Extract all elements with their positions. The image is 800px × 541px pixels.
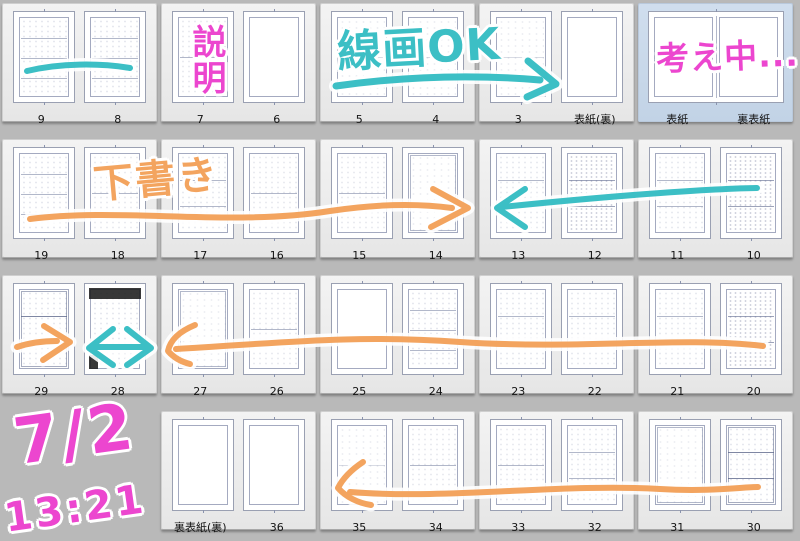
page-spread-unit[interactable]: 54 bbox=[320, 3, 475, 122]
page-number-label: 28 bbox=[80, 385, 157, 399]
page-sketch-content bbox=[180, 427, 226, 503]
page-number-label: 14 bbox=[398, 249, 475, 263]
thumbnail-area bbox=[639, 276, 792, 385]
page-number-labels: 1110 bbox=[639, 249, 792, 263]
page-number-labels: 3332 bbox=[480, 521, 633, 535]
page-thumbnail[interactable] bbox=[331, 419, 393, 511]
page-thumbnail[interactable] bbox=[561, 419, 623, 511]
page-manager-screen: 9876543表紙(裏)表紙裏表紙19181716151413121110292… bbox=[0, 0, 800, 541]
page-sketch-content bbox=[339, 291, 385, 367]
page-thumbnail[interactable] bbox=[720, 283, 782, 375]
page-sketch-content bbox=[498, 19, 544, 95]
page-number-labels: 1918 bbox=[3, 249, 156, 263]
thumbnail-area bbox=[480, 412, 633, 521]
page-spread-unit[interactable]: 2524 bbox=[320, 275, 475, 394]
page-number-label: 10 bbox=[716, 249, 793, 263]
thumbnail-area bbox=[639, 4, 792, 113]
page-spread-unit[interactable]: 3332 bbox=[479, 411, 634, 530]
page-thumbnail[interactable] bbox=[331, 11, 393, 103]
page-number-label: 17 bbox=[162, 249, 239, 263]
page-number-labels: 表紙裏表紙 bbox=[639, 113, 792, 127]
page-thumbnail[interactable] bbox=[402, 419, 464, 511]
page-thumbnail[interactable] bbox=[172, 147, 234, 239]
page-spread-unit[interactable]: 1110 bbox=[638, 139, 793, 258]
page-thumbnail[interactable] bbox=[84, 283, 146, 375]
page-sketch-content bbox=[180, 155, 226, 231]
page-number-label: 22 bbox=[557, 385, 634, 399]
thumbnail-area bbox=[3, 4, 156, 113]
page-sketch-content bbox=[339, 427, 385, 503]
page-row: 19181716151413121110 bbox=[2, 139, 798, 258]
page-row: 29282726252423222120 bbox=[2, 275, 798, 394]
page-number-label: 27 bbox=[162, 385, 239, 399]
page-number-labels: 3130 bbox=[639, 521, 792, 535]
page-sketch-content bbox=[21, 155, 67, 231]
page-spread-unit[interactable]: 2928 bbox=[2, 275, 157, 394]
page-number-label: 30 bbox=[716, 521, 793, 535]
page-sketch-content bbox=[657, 291, 703, 367]
page-number-label: 4 bbox=[398, 113, 475, 127]
page-spread-unit[interactable]: 1918 bbox=[2, 139, 157, 258]
page-thumbnail[interactable] bbox=[172, 283, 234, 375]
page-sketch-content bbox=[569, 427, 615, 503]
page-thumbnail[interactable] bbox=[720, 419, 782, 511]
page-number-label: 6 bbox=[239, 113, 316, 127]
page-sketch-content bbox=[569, 155, 615, 231]
page-sketch-content bbox=[251, 19, 297, 95]
page-number-label: 7 bbox=[162, 113, 239, 127]
page-number-label: 19 bbox=[3, 249, 80, 263]
page-sketch-content bbox=[180, 19, 226, 95]
page-row: 裏表紙(裏)36353433323130 bbox=[2, 411, 798, 530]
page-spread-unit[interactable]: 3表紙(裏) bbox=[479, 3, 634, 122]
page-thumbnail[interactable] bbox=[649, 283, 711, 375]
page-number-label: 11 bbox=[639, 249, 716, 263]
page-number-label: 5 bbox=[321, 113, 398, 127]
page-thumbnail[interactable] bbox=[402, 11, 464, 103]
page-thumbnail[interactable] bbox=[84, 147, 146, 239]
page-number-labels: 2322 bbox=[480, 385, 633, 399]
page-sketch-content bbox=[339, 155, 385, 231]
page-number-labels: 1514 bbox=[321, 249, 474, 263]
page-thumbnail[interactable] bbox=[490, 147, 552, 239]
page-number-label: 34 bbox=[398, 521, 475, 535]
page-number-label: 8 bbox=[80, 113, 157, 127]
page-number-labels: 3表紙(裏) bbox=[480, 113, 633, 127]
thumbnail-area bbox=[321, 412, 474, 521]
page-thumbnail[interactable] bbox=[243, 11, 305, 103]
page-sketch-content bbox=[21, 19, 67, 95]
page-number-labels: 2524 bbox=[321, 385, 474, 399]
page-spread-unit[interactable]: 1514 bbox=[320, 139, 475, 258]
page-number-label: 9 bbox=[3, 113, 80, 127]
page-number-label: 表紙(裏) bbox=[557, 113, 634, 127]
page-number-labels: 2120 bbox=[639, 385, 792, 399]
page-sketch-content bbox=[92, 291, 138, 367]
page-sketch-content bbox=[728, 427, 774, 503]
thumbnail-area bbox=[480, 276, 633, 385]
cover-spread-thumbnail[interactable] bbox=[648, 11, 784, 103]
page-spread-unit[interactable]: 3130 bbox=[638, 411, 793, 530]
page-spread-unit[interactable]: 98 bbox=[2, 3, 157, 122]
page-thumbnail[interactable] bbox=[243, 419, 305, 511]
page-sketch-content bbox=[498, 427, 544, 503]
thumbnail-area bbox=[162, 4, 315, 113]
thumbnail-area bbox=[162, 140, 315, 249]
page-spread-unit[interactable]: 3534 bbox=[320, 411, 475, 530]
page-sketch-content bbox=[251, 291, 297, 367]
page-number-label: 24 bbox=[398, 385, 475, 399]
page-thumbnail[interactable] bbox=[402, 147, 464, 239]
page-thumbnail[interactable] bbox=[331, 283, 393, 375]
page-sketch-content bbox=[498, 155, 544, 231]
page-spread-unit[interactable]: 2726 bbox=[161, 275, 316, 394]
page-sketch-content bbox=[410, 19, 456, 95]
page-thumbnail[interactable] bbox=[331, 147, 393, 239]
page-sketch-content bbox=[410, 427, 456, 503]
page-thumbnail[interactable] bbox=[172, 419, 234, 511]
page-spread-unit[interactable]: 76 bbox=[161, 3, 316, 122]
page-thumbnail[interactable] bbox=[84, 11, 146, 103]
page-thumbnail[interactable] bbox=[172, 11, 234, 103]
page-number-labels: 76 bbox=[162, 113, 315, 127]
page-number-label: 32 bbox=[557, 521, 634, 535]
page-number-label: 18 bbox=[80, 249, 157, 263]
page-spread-unit[interactable]: 裏表紙(裏)36 bbox=[161, 411, 316, 530]
page-number-labels: 2928 bbox=[3, 385, 156, 399]
thumbnail-area bbox=[3, 276, 156, 385]
page-thumbnail[interactable] bbox=[561, 283, 623, 375]
page-number-label: 15 bbox=[321, 249, 398, 263]
page-number-labels: 2726 bbox=[162, 385, 315, 399]
page-sketch-content bbox=[728, 155, 774, 231]
page-thumbnail[interactable] bbox=[490, 283, 552, 375]
thumbnail-area bbox=[321, 140, 474, 249]
page-spread-unit[interactable]: 2120 bbox=[638, 275, 793, 394]
page-sketch-content bbox=[410, 155, 456, 231]
page-thumbnail[interactable] bbox=[561, 11, 623, 103]
page-number-label: 20 bbox=[716, 385, 793, 399]
page-sketch-content bbox=[251, 427, 297, 503]
page-sketch-content bbox=[92, 19, 138, 95]
page-sketch-content bbox=[569, 19, 615, 95]
page-number-label: 23 bbox=[480, 385, 557, 399]
page-sketch-content bbox=[251, 155, 297, 231]
thumbnail-area bbox=[480, 4, 633, 113]
page-thumbnail[interactable] bbox=[13, 147, 75, 239]
page-sketch-content bbox=[339, 19, 385, 95]
page-spread-unit[interactable]: 表紙裏表紙 bbox=[638, 3, 793, 122]
page-thumbnail[interactable] bbox=[649, 147, 711, 239]
page-thumbnail[interactable] bbox=[561, 147, 623, 239]
page-number-label: 12 bbox=[557, 249, 634, 263]
page-number-label: 26 bbox=[239, 385, 316, 399]
page-number-label: 29 bbox=[3, 385, 80, 399]
page-row: 9876543表紙(裏)表紙裏表紙 bbox=[2, 3, 798, 122]
thumbnail-area bbox=[321, 4, 474, 113]
thumbnail-area bbox=[162, 412, 315, 521]
page-thumbnail[interactable] bbox=[490, 419, 552, 511]
thumbnail-area bbox=[3, 140, 156, 249]
page-frame bbox=[719, 17, 778, 97]
page-thumbnail[interactable] bbox=[13, 283, 75, 375]
page-thumbnail[interactable] bbox=[490, 11, 552, 103]
page-number-label: 36 bbox=[239, 521, 316, 535]
page-number-labels: 3534 bbox=[321, 521, 474, 535]
page-frame bbox=[654, 17, 713, 97]
spread-fold-line bbox=[716, 16, 717, 98]
thumbnail-area bbox=[321, 276, 474, 385]
page-number-label: 31 bbox=[639, 521, 716, 535]
page-sketch-content bbox=[657, 155, 703, 231]
page-sketch-content bbox=[498, 291, 544, 367]
page-sketch-content bbox=[410, 291, 456, 367]
page-thumbnail[interactable] bbox=[243, 283, 305, 375]
page-number-label: 13 bbox=[480, 249, 557, 263]
page-thumbnail[interactable] bbox=[402, 283, 464, 375]
page-number-label: 16 bbox=[239, 249, 316, 263]
page-number-label: 表紙 bbox=[639, 113, 716, 127]
page-sketch-content bbox=[21, 291, 67, 367]
page-number-labels: 裏表紙(裏)36 bbox=[162, 521, 315, 535]
page-spread-unit[interactable]: 2322 bbox=[479, 275, 634, 394]
thumbnail-area bbox=[639, 412, 792, 521]
thumbnail-area bbox=[480, 140, 633, 249]
page-number-label: 裏表紙(裏) bbox=[162, 521, 239, 535]
page-number-labels: 98 bbox=[3, 113, 156, 127]
page-number-label: 35 bbox=[321, 521, 398, 535]
page-sketch-content bbox=[180, 291, 226, 367]
page-thumbnail[interactable] bbox=[720, 147, 782, 239]
page-sketch-content bbox=[728, 291, 774, 367]
page-spread-unit[interactable]: 1312 bbox=[479, 139, 634, 258]
page-thumbnail[interactable] bbox=[13, 11, 75, 103]
page-number-label: 3 bbox=[480, 113, 557, 127]
page-grid: 9876543表紙(裏)表紙裏表紙19181716151413121110292… bbox=[0, 0, 800, 530]
page-sketch-content bbox=[92, 155, 138, 231]
page-number-label: 25 bbox=[321, 385, 398, 399]
thumbnail-area bbox=[162, 276, 315, 385]
page-number-label: 33 bbox=[480, 521, 557, 535]
page-number-label: 21 bbox=[639, 385, 716, 399]
page-number-label: 裏表紙 bbox=[716, 113, 793, 127]
page-thumbnail[interactable] bbox=[243, 147, 305, 239]
thumbnail-area bbox=[639, 140, 792, 249]
page-spread-unit[interactable]: 1716 bbox=[161, 139, 316, 258]
page-number-labels: 54 bbox=[321, 113, 474, 127]
page-thumbnail[interactable] bbox=[649, 419, 711, 511]
page-sketch-content bbox=[569, 291, 615, 367]
page-sketch-content bbox=[657, 427, 703, 503]
page-number-labels: 1716 bbox=[162, 249, 315, 263]
page-number-labels: 1312 bbox=[480, 249, 633, 263]
